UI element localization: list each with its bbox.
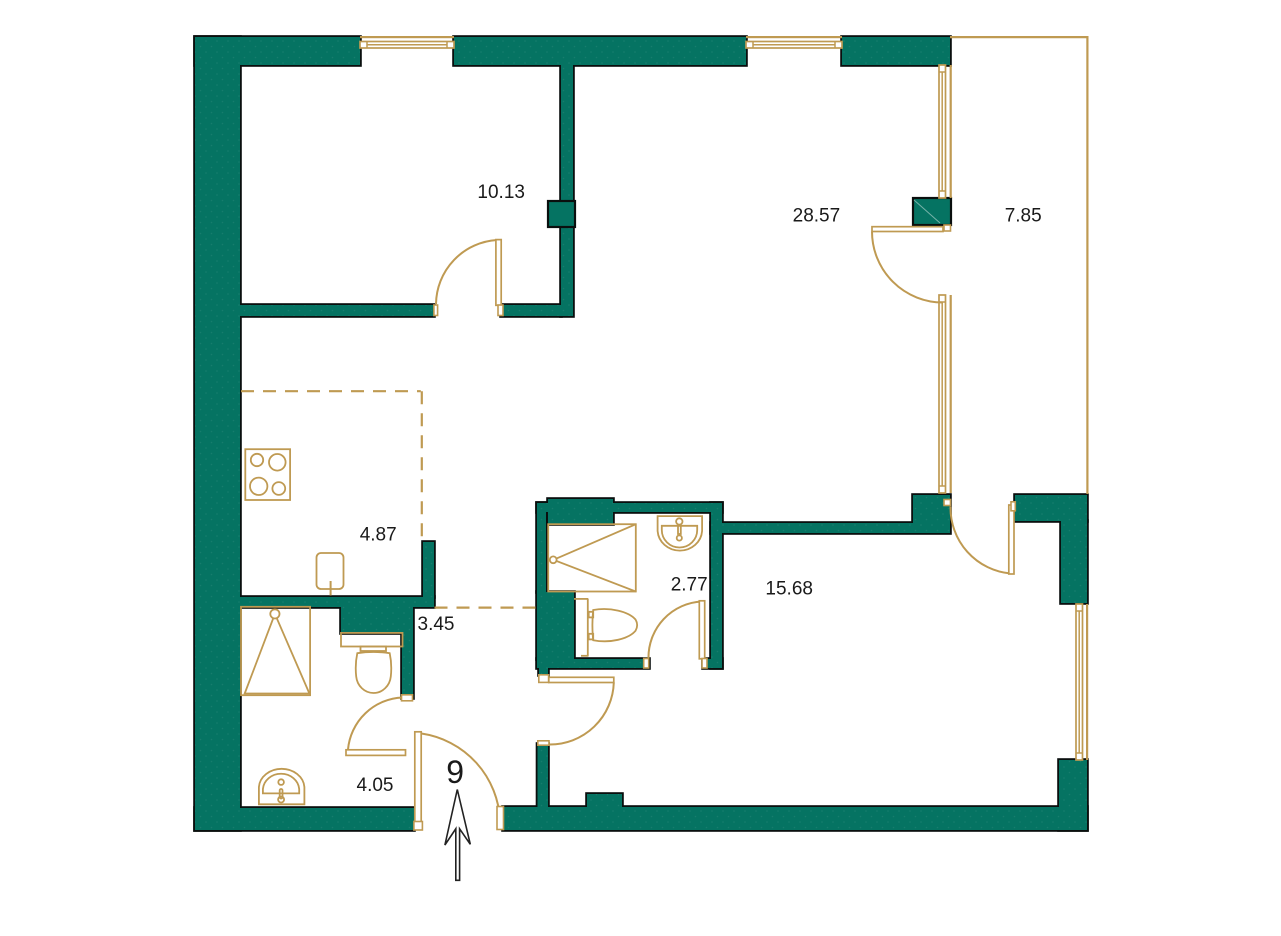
svg-text:9: 9 <box>446 754 464 790</box>
svg-text:10.13: 10.13 <box>477 182 525 203</box>
svg-text:3.45: 3.45 <box>418 614 455 635</box>
svg-text:28.57: 28.57 <box>793 206 841 227</box>
svg-text:4.87: 4.87 <box>360 525 397 546</box>
svg-text:15.68: 15.68 <box>765 579 813 600</box>
svg-text:7.85: 7.85 <box>1005 206 1042 227</box>
svg-text:2.77: 2.77 <box>671 575 708 596</box>
svg-text:4.05: 4.05 <box>357 775 394 796</box>
